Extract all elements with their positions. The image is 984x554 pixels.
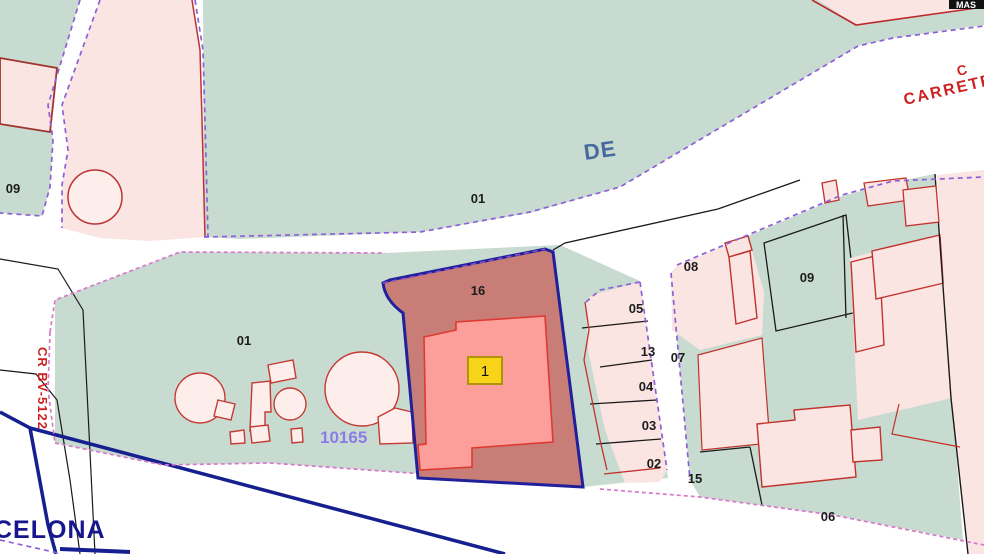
label-cr-bv-5122: CR BV-5122 — [35, 347, 50, 430]
label-parcel-01-bottom: 01 — [237, 333, 251, 348]
label-parcel-02: 02 — [647, 456, 661, 471]
tank-circle-upper-left — [68, 170, 122, 224]
label-barcelona-partial: CELONA — [0, 516, 106, 544]
label-parcel-13: 13 — [641, 344, 655, 359]
highlight-badge-label: 1 — [481, 363, 489, 380]
building-topright-c — [903, 186, 939, 226]
tank-square-d — [291, 428, 303, 443]
tank-circle-mid — [274, 388, 306, 420]
label-parcel-09-right: 09 — [800, 270, 814, 285]
label-parcel-06: 06 — [821, 509, 835, 524]
label-parcel-15: 15 — [688, 471, 702, 486]
label-parcel-08: 08 — [684, 259, 698, 274]
cadastral-map-viewport[interactable]: 1 09 01 16 01 05 13 04 03 02 15 07 08 09… — [0, 0, 984, 554]
label-parcel-03: 03 — [642, 418, 656, 433]
label-road-de: DE — [582, 136, 618, 165]
label-parcel-09-left: 09 — [6, 181, 20, 196]
building-top-left — [0, 58, 57, 132]
label-10165: 10165 — [320, 428, 367, 447]
tank-square-c — [250, 425, 270, 443]
cadastral-map: 1 09 01 16 01 05 13 04 03 02 15 07 08 09… — [0, 0, 984, 554]
tank-square-b — [230, 430, 245, 444]
tank-rect-tilted — [268, 360, 296, 383]
label-parcel-16: 16 — [471, 283, 485, 298]
label-parcel-01-top: 01 — [471, 191, 485, 206]
label-parcel-04: 04 — [639, 379, 654, 394]
label-parcel-07: 07 — [671, 350, 685, 365]
building-bottom-right-annex — [851, 427, 882, 462]
corner-black-box-label: MAS — [956, 0, 976, 10]
tank-square-a — [214, 400, 235, 420]
label-parcel-05: 05 — [629, 301, 643, 316]
